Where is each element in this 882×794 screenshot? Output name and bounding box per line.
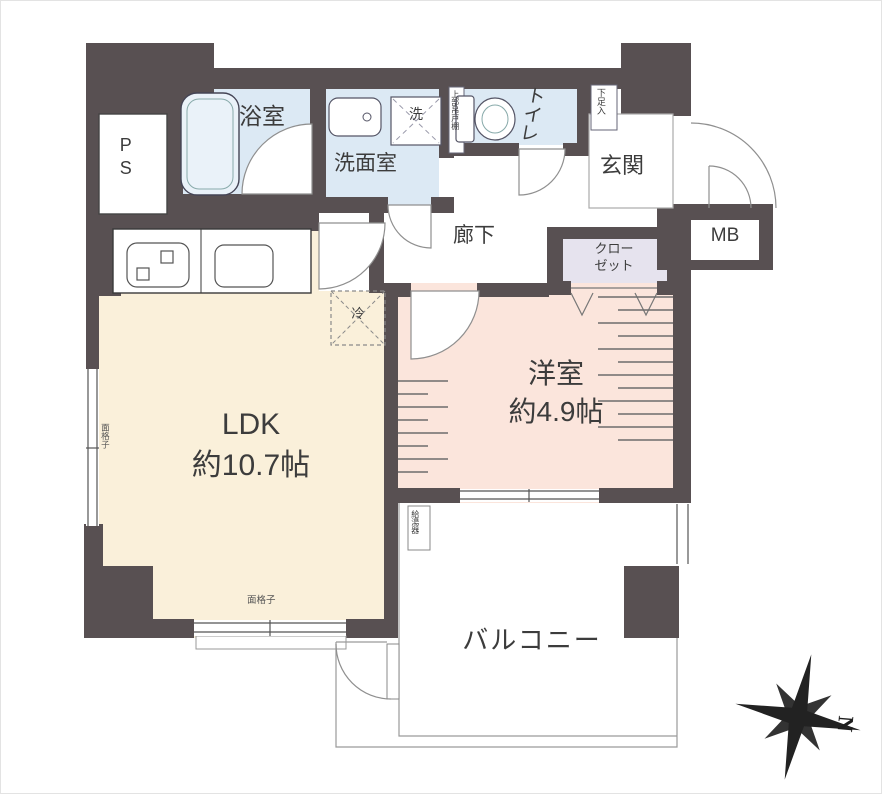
stove-icon	[127, 243, 189, 287]
window-ledge	[196, 636, 346, 649]
room-label-entrance: 玄関	[600, 154, 644, 178]
wall-segment	[621, 43, 691, 116]
label-window-grille-left: 面格子	[100, 423, 109, 449]
label-shoe-cabinet: 下足入	[595, 88, 605, 115]
kitchen-sink-icon	[215, 245, 273, 287]
label-water-heater: 給湯器	[410, 510, 419, 534]
room-label-bath: 浴室	[239, 104, 285, 129]
western-room-size: 約4.9帖	[433, 393, 679, 431]
room-label-balcony: バルコニー	[419, 626, 645, 655]
toilet-bowl-icon	[475, 98, 515, 140]
compass-rose: N	[735, 654, 860, 779]
label-window-grille-bottom: 面格子	[247, 596, 276, 606]
washbasin-icon	[329, 98, 381, 136]
toilet-door-arc	[519, 149, 565, 195]
wall-segment	[84, 619, 194, 638]
wall-segment	[477, 283, 549, 297]
bathtub-icon	[181, 93, 239, 195]
label-refrigerator-space: 冷	[331, 307, 385, 321]
label-toilet-upper-shelf: 上部吊戸棚	[450, 90, 459, 130]
western-room-name: 洋室	[433, 355, 679, 393]
closet-label-line1: クロー	[561, 241, 667, 258]
entrance-door-arc-main	[691, 123, 776, 208]
room-label-corridor: 廊下	[453, 224, 495, 247]
room-label-ps: PS	[115, 135, 135, 181]
label-meter-box: MB	[691, 226, 759, 247]
balcony-partition-door-arc	[336, 644, 391, 699]
entrance-door-arc-child	[709, 166, 751, 208]
wall-segment	[84, 566, 153, 621]
compass-north-label: N	[833, 715, 859, 733]
balcony-partition-door-leaf	[387, 644, 399, 699]
wall-segment	[667, 204, 691, 293]
wall-segment	[547, 281, 571, 295]
ldk-name: LDK	[129, 405, 373, 446]
label-washer-pan: 洗	[391, 107, 441, 122]
ldk-size: 約10.7帖	[129, 446, 373, 487]
wall-segment	[84, 524, 103, 568]
wall-segment	[384, 283, 398, 638]
room-label-western: 洋室 約4.9帖	[433, 355, 679, 431]
wall-segment	[384, 488, 460, 503]
washroom-door-arc	[388, 205, 431, 248]
floor-plan: N PS 浴室 洗面室 洗 トイレ 上部吊戸棚 下足入 玄関 MB 廊下 クロー…	[0, 0, 882, 794]
wall-segment	[86, 296, 99, 371]
closet-label-line2: ゼット	[561, 258, 667, 275]
room-label-washroom: 洗面室	[334, 152, 397, 175]
room-label-closet: クロー ゼット	[561, 241, 667, 275]
wall-segment	[346, 619, 398, 638]
room-label-ldk: LDK 約10.7帖	[129, 405, 373, 486]
wall-segment	[431, 197, 454, 213]
